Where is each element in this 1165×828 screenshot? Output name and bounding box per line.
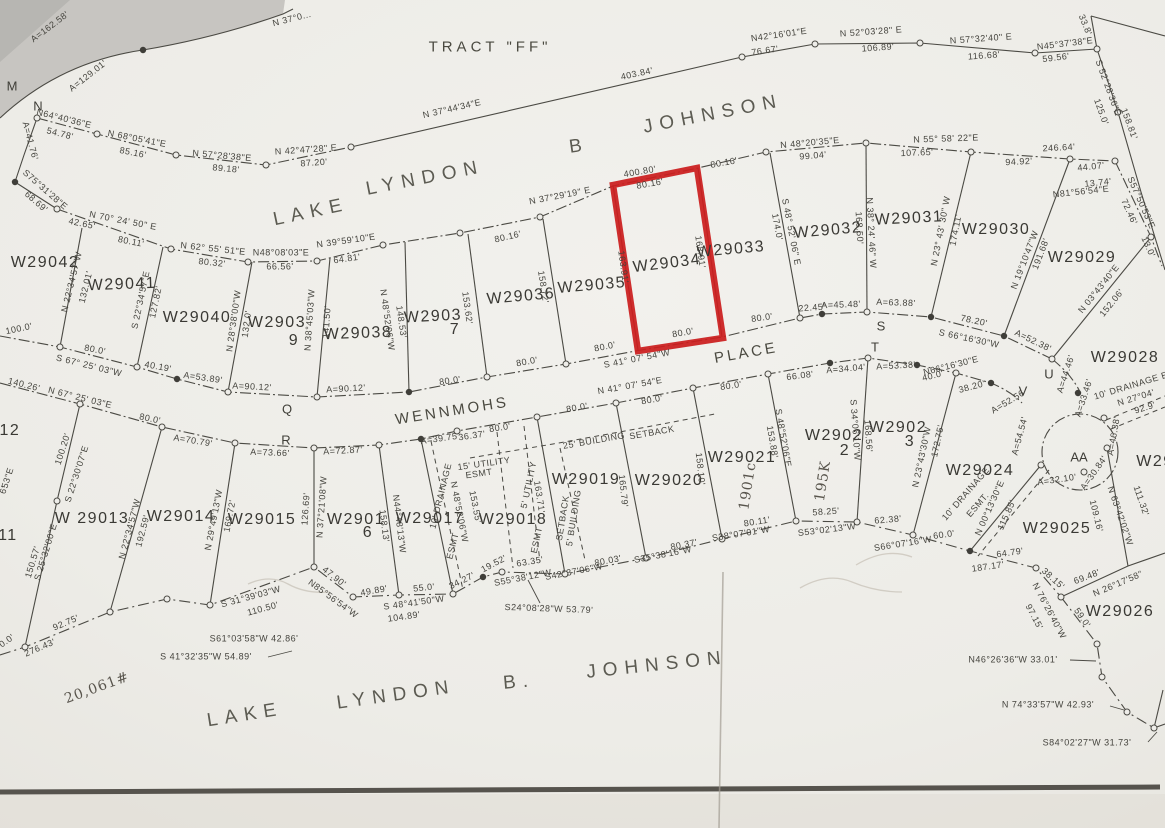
- lot-label-w29037-digit: 7: [450, 322, 460, 338]
- distance-label: 168.56': [862, 419, 873, 452]
- lot-label-w29011-partial: W29011: [0, 528, 18, 544]
- lot-label-w29021: W29021: [708, 450, 777, 466]
- arc-label: A=73.66': [250, 448, 290, 458]
- point-letter-r: R: [281, 434, 290, 447]
- lot-label-w29025: W29025: [1023, 521, 1092, 537]
- lot-label-w29014: W29014: [147, 509, 216, 525]
- point-letter-t: T: [871, 341, 879, 354]
- lot-label-w29029: W29029: [1048, 250, 1117, 266]
- lot-label-w29013: W 29013: [55, 511, 130, 527]
- point-letter-s: S: [877, 320, 886, 333]
- distance-label: 107.65': [900, 148, 933, 158]
- bearing-label: S84°02'27"W 31.73': [1043, 739, 1132, 748]
- lot-label-w29016-digit: 6: [363, 525, 373, 541]
- arc-label: A=63.88': [876, 298, 916, 308]
- lake-name: B: [568, 135, 590, 157]
- bearing-label: S61°03'58"W 42.86': [210, 635, 299, 644]
- distance-label: 58.25': [812, 507, 840, 518]
- bottom-strip: [0, 794, 1165, 828]
- distance-label: 246.64': [1042, 143, 1075, 154]
- lot-label-w29040: W29040: [163, 310, 232, 326]
- bearing-label: N46°26'36"W 33.01': [968, 656, 1057, 665]
- lot-label-w29030: W29030: [962, 222, 1031, 238]
- bearing-label: N48°08'03"E: [253, 249, 310, 258]
- tract-label: TRACT "FF": [429, 40, 552, 55]
- survey-points: [22, 40, 1157, 731]
- bearing-label: S 41°32'35"W 54.89': [160, 653, 252, 662]
- lot-label-w29026: W29026: [1086, 604, 1155, 620]
- shoreline: [0, 521, 1165, 728]
- lot-label-w29028: W29028: [1091, 350, 1160, 366]
- point-letter-v: V: [1019, 385, 1028, 398]
- scan-artifacts: [0, 0, 1165, 828]
- lot-label-w29023-digit: 3: [905, 434, 915, 450]
- distance-label: 87.20': [300, 158, 328, 169]
- plat-map-scan: A=162.58' A=129.01' N 37°0... TRACT "FF"…: [0, 0, 1165, 828]
- bearing-label: N 74°33'57"W 42.93': [1002, 701, 1094, 710]
- lake-name: B.: [502, 671, 535, 693]
- lot-label-w29039-prefix: W2903: [248, 315, 306, 331]
- lot-label-w29019: W29019: [552, 472, 621, 488]
- point-letter-m: M: [7, 80, 18, 93]
- lot-label-w29027-partial: W29: [1136, 454, 1165, 470]
- lot-label-w29020: W29020: [635, 473, 704, 489]
- arc-label: A=45.48': [821, 300, 861, 310]
- distance-label: 168.50': [854, 211, 865, 244]
- lot-label-w29038: W29038: [323, 325, 392, 343]
- distance-label: 94.92': [1005, 157, 1033, 167]
- thick-rule: [0, 787, 1160, 792]
- point-letter-n: N: [33, 100, 42, 113]
- lot-label-w29022-digit: 2: [840, 443, 850, 459]
- lot-label-w29016-prefix: W2901: [327, 512, 385, 528]
- point-letter-q: Q: [282, 403, 292, 416]
- shore-spur: [1154, 690, 1163, 728]
- lot-label-w29015: W29015: [228, 512, 297, 528]
- point-letter-u: U: [1044, 368, 1053, 381]
- point-letter-aa: AA: [1070, 451, 1087, 464]
- lot-label-w29039-digit: 9: [289, 333, 299, 349]
- lot-label-w29012-partial: W29012: [0, 423, 20, 439]
- distance-label: 66.56': [266, 263, 293, 272]
- lot-label-w29023-prefix: W2902: [869, 420, 927, 436]
- plat-linework: [0, 0, 1165, 828]
